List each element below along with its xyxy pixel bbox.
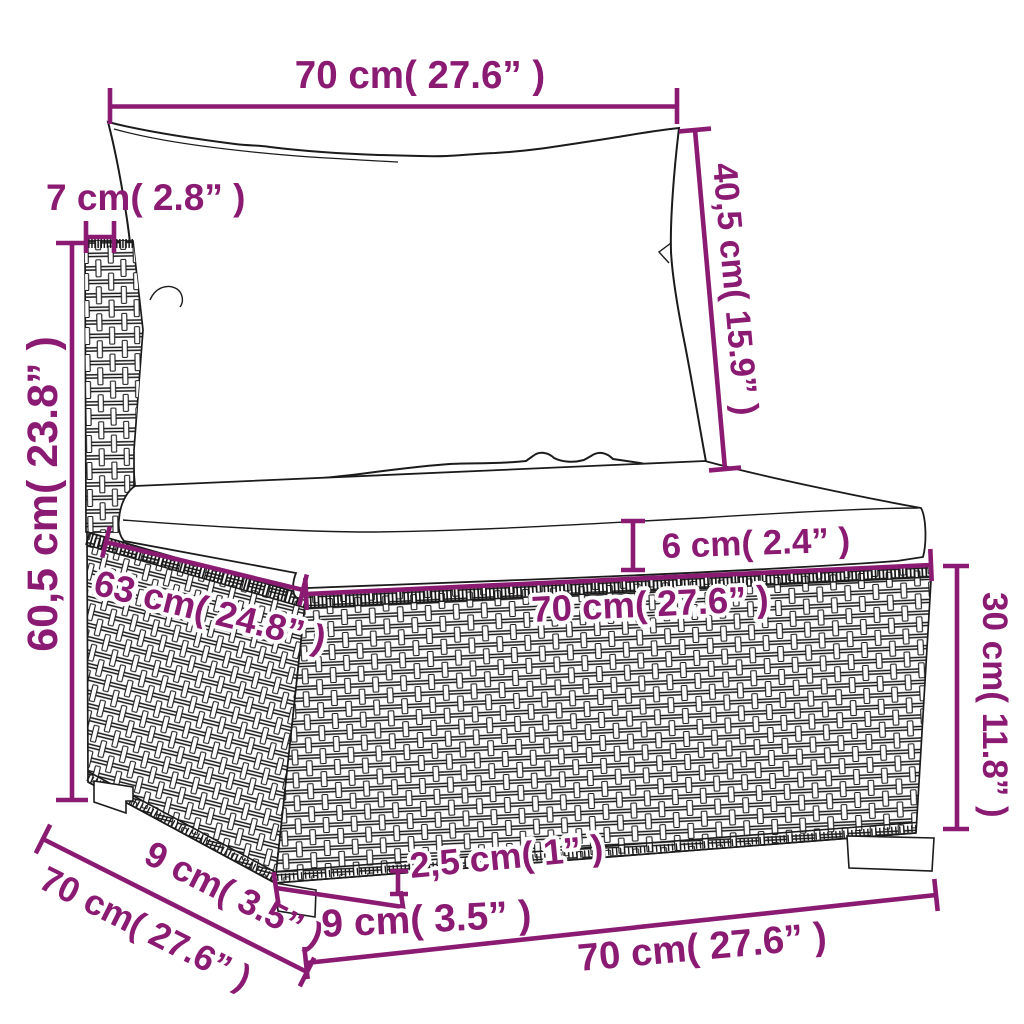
svg-text:6 cm( 2.4” ): 6 cm( 2.4” )	[661, 520, 851, 566]
svg-text:60,5 cm( 23.8” ): 60,5 cm( 23.8” )	[19, 336, 67, 652]
svg-text:7 cm( 2.8” ): 7 cm( 2.8” )	[46, 177, 245, 218]
svg-text:70 cm( 27.6” ): 70 cm( 27.6” )	[295, 54, 545, 97]
svg-text:30 cm( 11.8” ): 30 cm( 11.8” )	[975, 592, 1014, 818]
